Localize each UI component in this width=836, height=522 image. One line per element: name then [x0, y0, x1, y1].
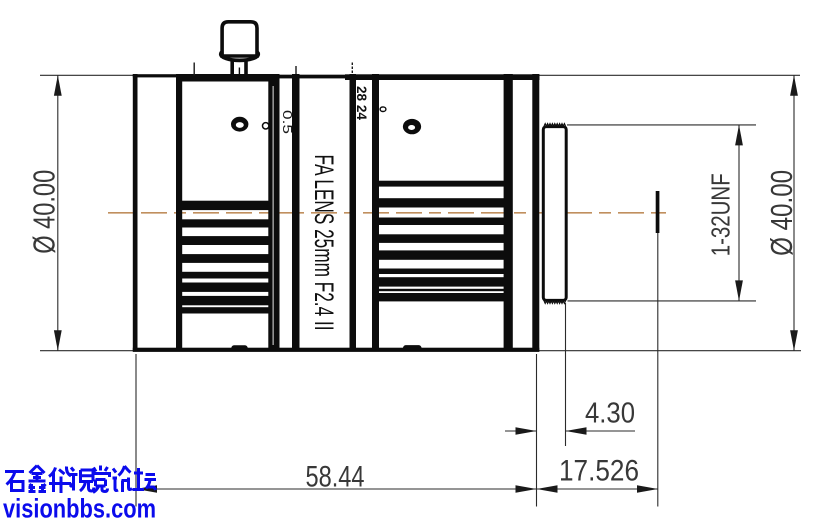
svg-text:Ø 40.00: Ø 40.00 — [27, 170, 62, 254]
svg-text:FA LENS 25mm F2.4 II: FA LENS 25mm F2.4 II — [309, 155, 339, 331]
svg-text:0.5: 0.5 — [280, 110, 295, 134]
svg-text:4.30: 4.30 — [585, 398, 635, 430]
svg-text:visionbbs.com: visionbbs.com — [3, 494, 156, 522]
svg-text:1-32UNF: 1-32UNF — [706, 173, 736, 256]
svg-text:17.526: 17.526 — [559, 455, 639, 488]
svg-text:28 24: 28 24 — [354, 86, 369, 120]
svg-text:Ø 40.00: Ø 40.00 — [764, 170, 799, 256]
svg-text:58.44: 58.44 — [306, 461, 365, 494]
